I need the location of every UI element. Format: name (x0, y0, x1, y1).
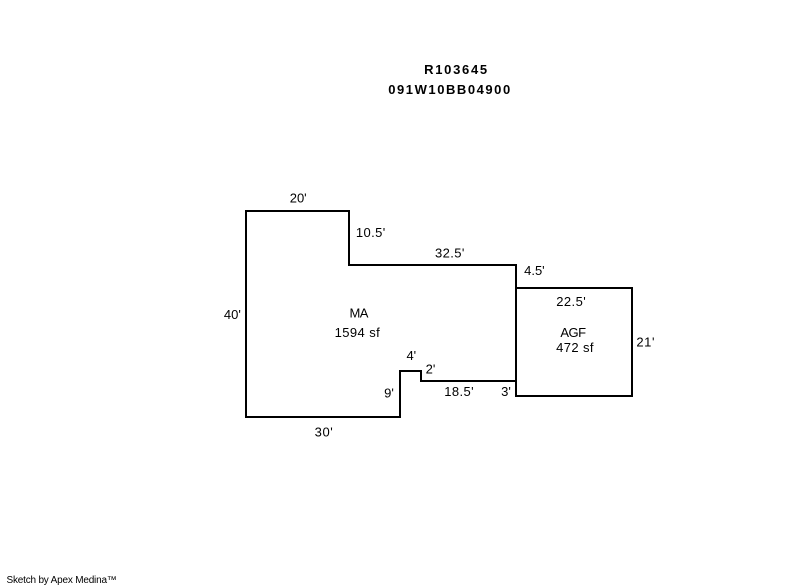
svg-text:21': 21' (636, 334, 655, 349)
svg-text:18.5': 18.5' (444, 384, 474, 399)
svg-text:1594 sf: 1594 sf (335, 325, 380, 340)
svg-text:Sketch by Apex Medina™: Sketch by Apex Medina™ (7, 575, 117, 586)
svg-text:091W10BB04900: 091W10BB04900 (388, 82, 512, 97)
svg-text:30': 30' (315, 425, 334, 440)
svg-text:MA: MA (349, 306, 368, 321)
svg-text:10.5': 10.5' (356, 225, 386, 240)
svg-text:32.5': 32.5' (435, 246, 465, 261)
svg-text:2': 2' (426, 362, 436, 377)
svg-text:9': 9' (384, 386, 394, 401)
svg-text:3': 3' (501, 384, 511, 399)
svg-text:40': 40' (224, 307, 241, 322)
svg-text:R103645: R103645 (424, 62, 489, 77)
svg-text:20': 20' (290, 190, 307, 205)
svg-text:22.5': 22.5' (556, 294, 586, 309)
svg-text:472 sf: 472 sf (556, 340, 594, 355)
svg-text:4': 4' (406, 348, 416, 363)
svg-text:4.5': 4.5' (524, 263, 545, 278)
svg-text:AGF: AGF (560, 325, 586, 340)
